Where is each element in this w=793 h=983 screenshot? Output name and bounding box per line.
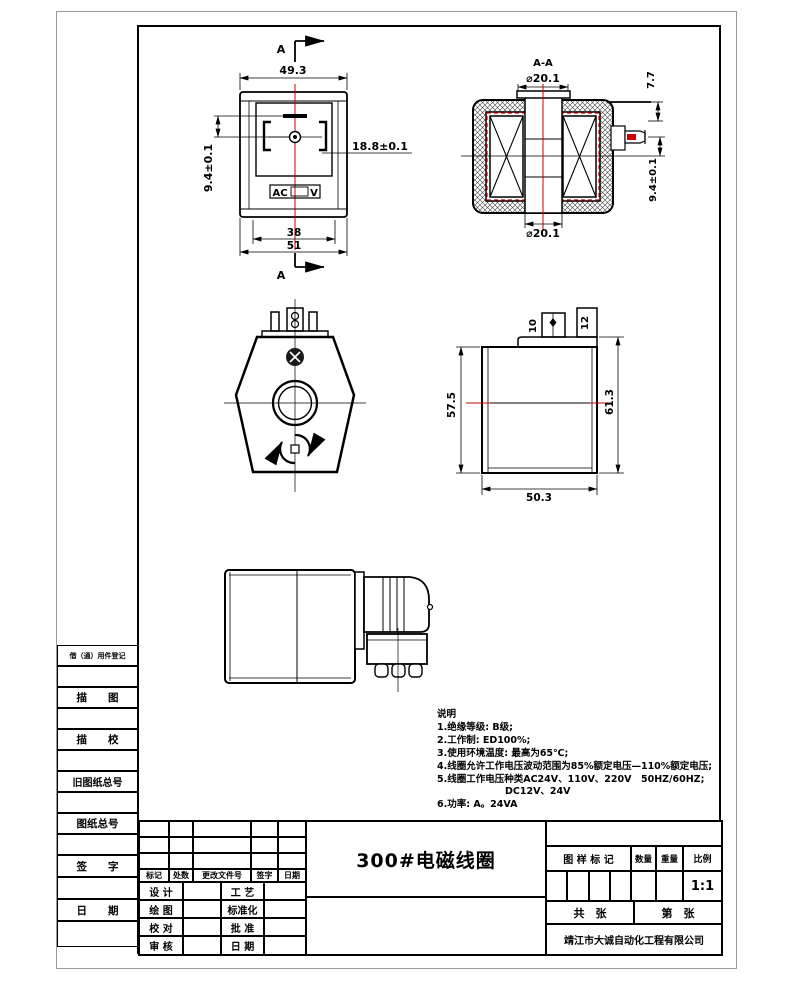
revision-cell (251, 837, 278, 853)
side-view: 10 12 57.5 61.3 50.3 (446, 308, 624, 504)
hex-end-view (224, 299, 366, 492)
revision-header-sign: 签字 (251, 869, 278, 882)
drawing-sheet: A A AC V 49.3 (0, 0, 793, 983)
revision-cell (139, 821, 169, 837)
revision-header-count: 处数 (169, 869, 193, 882)
role-date: 日 期 (221, 936, 264, 955)
role-draw: 绘 图 (139, 900, 183, 918)
notes-heading: 说明 (437, 708, 457, 720)
dim-pin1: 10 (528, 319, 539, 333)
scale-header: 比例 (683, 846, 722, 871)
note-line-5: 5.线圈工作电压种类AC24V、110V、220V 50HZ/60HZ; (437, 773, 704, 785)
dim-terminal-offset: 9.4±0.1 (648, 158, 659, 202)
revision-cell (251, 853, 278, 869)
revision-cell (278, 821, 306, 837)
revision-cell (169, 821, 193, 837)
section-label-top: A (277, 43, 286, 56)
note-line-1: 1.绝缘等级: B级; (437, 721, 513, 733)
mark-cell (610, 871, 631, 901)
note-line-3: 3.使用环境温度: 最高为65℃; (437, 747, 568, 759)
revision-cell (139, 837, 169, 853)
qty-value (631, 871, 656, 901)
plate-v-label: V (310, 188, 318, 199)
revision-header-file-no: 更改文件号 (193, 869, 251, 882)
dim-height-left: 57.5 (446, 392, 458, 418)
role-design-value (183, 882, 221, 900)
front-view: A A AC V 49.3 (202, 41, 412, 282)
weight-value (656, 871, 683, 901)
sidebar-box (57, 708, 138, 729)
dim-top-width: 49.3 (279, 64, 306, 77)
dim-bottom-width: 50.3 (526, 492, 552, 504)
sidebar-box (57, 834, 138, 855)
revision-cell (193, 821, 251, 837)
company-name: 靖江市大诚自动化工程有限公司 (546, 924, 722, 955)
dim-height-right: 61.3 (604, 389, 616, 415)
mark-cell (567, 871, 589, 901)
sidebar-label-trace-check: 描 校 (57, 729, 138, 750)
revision-cell (169, 853, 193, 869)
dim-inner-width: 38 (287, 227, 302, 239)
role-design: 设 计 (139, 882, 183, 900)
revision-cell (139, 853, 169, 869)
dim-bore-bottom: ⌀20.1 (526, 227, 560, 240)
role-draw-value (183, 900, 221, 918)
sidebar-box (57, 666, 138, 687)
role-date-value (264, 936, 306, 955)
role-audit: 审 核 (139, 936, 183, 955)
sheet-no: 第 张 (634, 901, 722, 924)
notes-block: 说明 1.绝缘等级: B级; 2.工作制: ED100%; 3.使用环境温度: … (437, 708, 712, 810)
revision-cell (251, 821, 278, 837)
role-approve-value (264, 918, 306, 936)
role-approve: 批 准 (221, 918, 264, 936)
dim-pin2: 12 (580, 316, 591, 330)
weight-header: 重量 (656, 846, 683, 871)
sidebar-box (57, 750, 138, 771)
note-line-5b: DC12V、24V (505, 786, 571, 797)
revision-header-date: 日期 (278, 869, 306, 882)
revision-header-mark: 标记 (139, 869, 169, 882)
dim-pin-offset: 9.4±0.1 (202, 144, 215, 192)
dim-lead-offset: 7.7 (646, 71, 657, 89)
sidebar-box (57, 921, 138, 947)
dim-bore-top: ⌀20.1 (526, 72, 560, 85)
role-check-value (183, 918, 221, 936)
role-standardize-value (264, 900, 306, 918)
mark-cell (546, 871, 567, 901)
note-line-2: 2.工作制: ED100%; (437, 734, 530, 746)
sidebar-box (57, 877, 138, 899)
role-process: 工 艺 (221, 882, 264, 900)
role-check: 校 对 (139, 918, 183, 936)
section-label-bottom: A (277, 269, 286, 282)
section-view-title: A-A (533, 58, 553, 69)
sidebar-label-signature: 签 字 (57, 855, 138, 877)
sidebar-label-drawing-no: 图纸总号 (57, 813, 138, 834)
role-standardize: 标准化 (221, 900, 264, 918)
sidebar-label-tracing: 描 图 (57, 687, 138, 708)
note-line-6: 6.功率: A。24VA (437, 798, 518, 810)
right-top-cell (546, 821, 722, 846)
dim-outer-width: 51 (287, 240, 302, 252)
title-lower-cell (306, 897, 546, 955)
revision-cell (193, 837, 251, 853)
revision-cell (278, 853, 306, 869)
revision-cell (278, 837, 306, 853)
sidebar-label-old-drawing-no: 旧图纸总号 (57, 771, 138, 792)
role-audit-value (183, 936, 221, 955)
title-block: 标记 处数 更改文件号 签字 日期 设 计 工 艺 绘 图 标准化 校 对 批 … (138, 820, 723, 956)
mark-cell (589, 871, 610, 901)
scale-value: 1:1 (683, 871, 722, 901)
note-line-4: 4.线圈允许工作电压波动范围为85%额定电压—110%额定电压; (437, 760, 712, 772)
revision-cell (169, 837, 193, 853)
sidebar-box (57, 792, 138, 813)
role-process-value (264, 882, 306, 900)
mark-header: 图 样 标 记 (546, 846, 631, 871)
dim-pin-span: 18.8±0.1 (352, 140, 408, 153)
plate-ac-label: AC (272, 188, 287, 199)
drawing-title: 300#电磁线圈 (306, 821, 546, 897)
revision-cell (193, 853, 251, 869)
section-view: A-A ⌀20.1 (461, 58, 665, 240)
qty-header: 数量 (631, 846, 656, 871)
sidebar-label-date: 日 期 (57, 899, 138, 921)
sidebar-label-borrowed-parts: 借（通）用件登记 (57, 645, 138, 666)
connector-side-view (225, 570, 433, 692)
sheets-total: 共 张 (546, 901, 634, 924)
